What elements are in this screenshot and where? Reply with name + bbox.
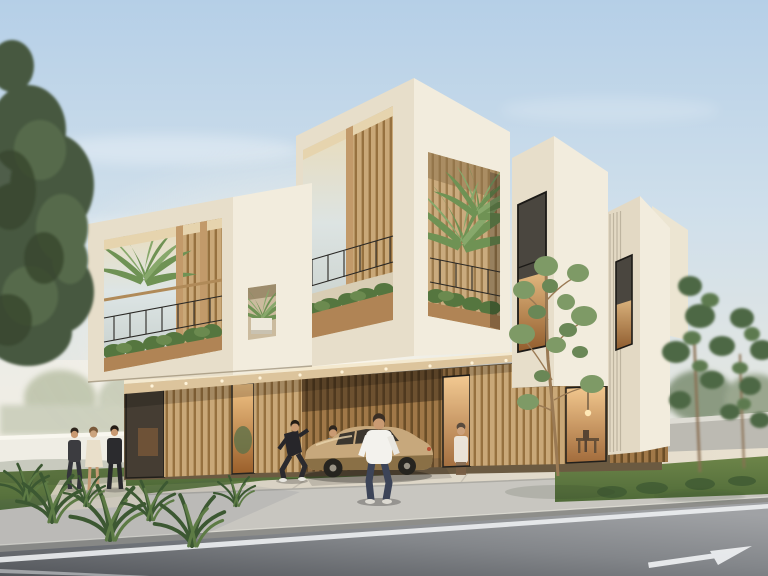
storefront-glass-right — [566, 386, 606, 463]
balcony-block-a — [93, 218, 222, 372]
tower-d-window — [616, 255, 632, 350]
storefront-glass-center — [443, 367, 470, 475]
tower-d — [608, 196, 670, 455]
architectural-rendering — [0, 0, 768, 576]
timber-slat-wall — [470, 364, 512, 466]
